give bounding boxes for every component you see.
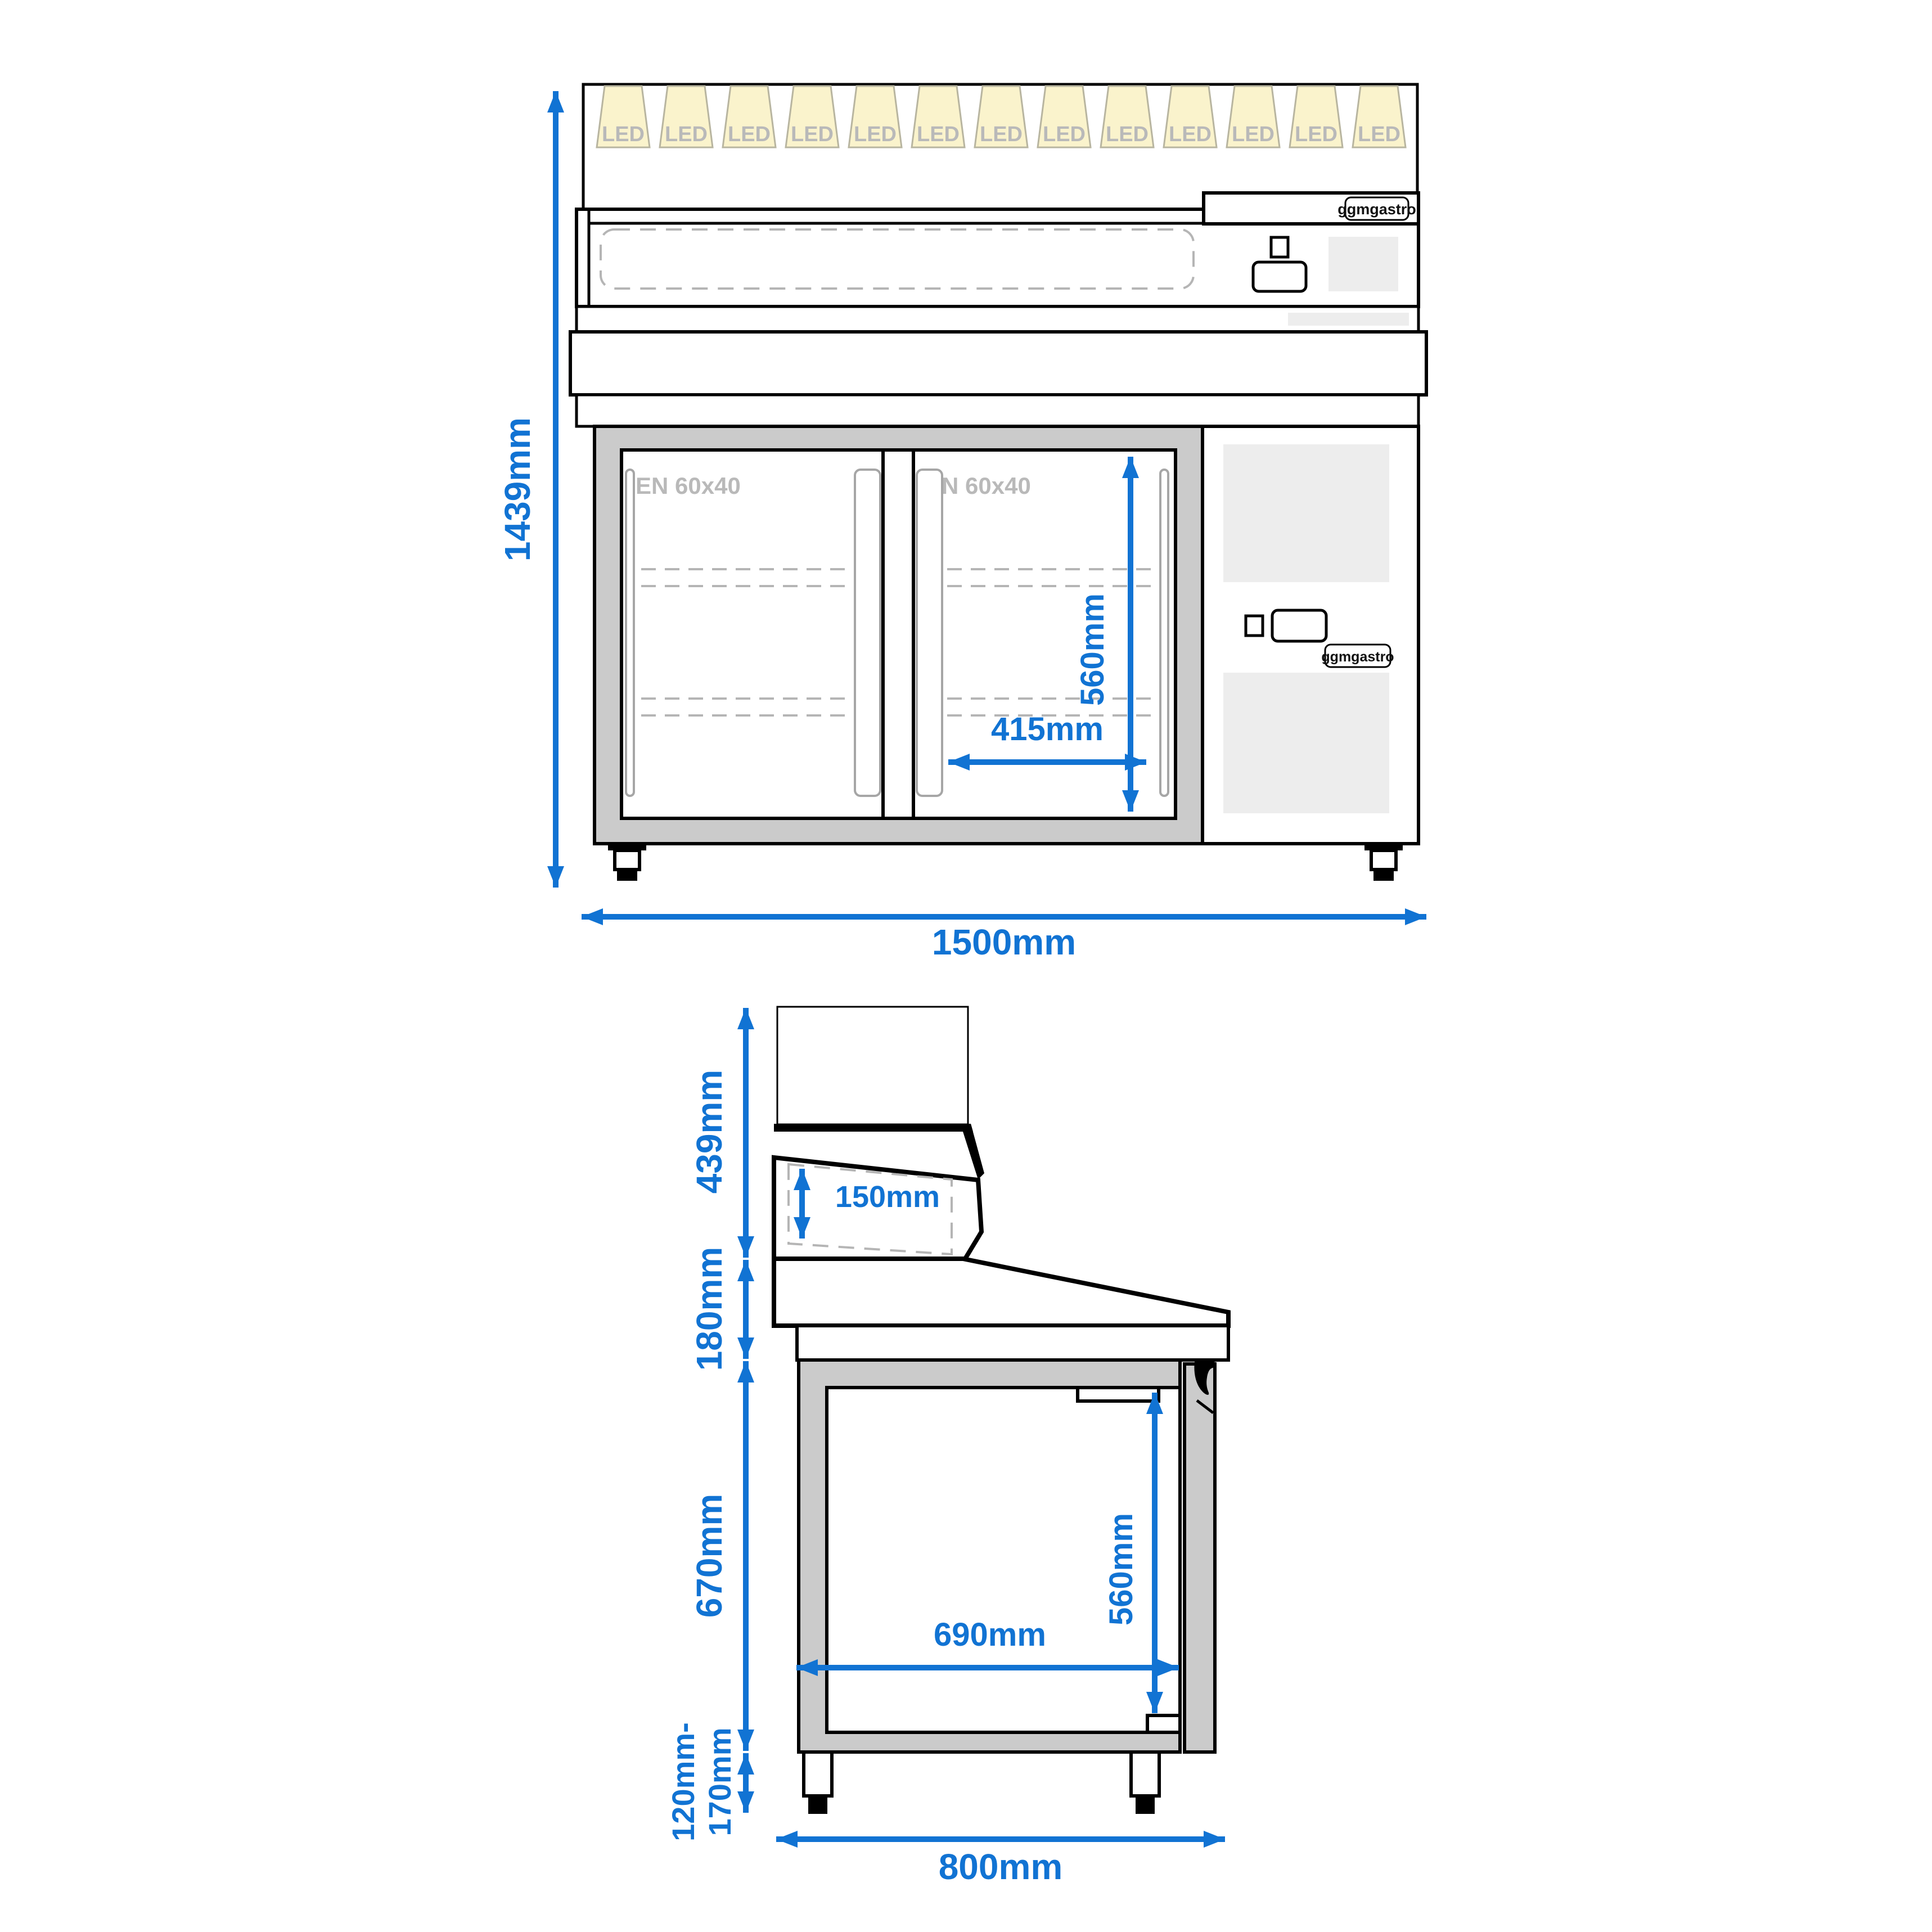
svg-text:560mm: 560mm (1074, 593, 1111, 706)
display-side-profile: 150mm (774, 1158, 981, 1259)
svg-text:LED: LED (665, 123, 708, 146)
side-view: 150mm 560mm (665, 1007, 1228, 1887)
foot-side-left (804, 1752, 832, 1814)
refrigerated-cabinet: EN 60x40 EN 60x40 (595, 426, 1203, 844)
svg-text:800mm: 800mm (939, 1847, 1063, 1887)
svg-text:LED: LED (1043, 123, 1086, 146)
svg-text:439mm: 439mm (689, 1070, 729, 1194)
brand-badge: ggmgastro (1337, 197, 1416, 220)
led-beam-icon: LED (1164, 86, 1217, 147)
rear-panel (777, 1007, 968, 1124)
floor-step (1147, 1715, 1180, 1732)
led-canopy: LED LED LED LED LED LED (583, 84, 1417, 209)
vent-grille (1223, 444, 1389, 582)
dim-total-depth: 800mm (776, 1839, 1225, 1887)
svg-text:150mm: 150mm (835, 1180, 940, 1214)
led-beam-icon: LED (1227, 86, 1280, 147)
svg-text:1500mm: 1500mm (932, 922, 1076, 962)
svg-text:170mm: 170mm (702, 1727, 737, 1836)
svg-text:180mm: 180mm (689, 1247, 729, 1371)
led-beam-icon: LED (975, 86, 1028, 147)
svg-text:LED: LED (980, 123, 1023, 146)
brand-badge: ggmgastro (1321, 645, 1394, 667)
foot-right (1364, 844, 1403, 881)
led-beam-icon: LED (1038, 86, 1091, 147)
svg-text:560mm: 560mm (1103, 1513, 1140, 1625)
front-view: 1439mm LED LED LED LED LED (497, 84, 1426, 962)
svg-text:LED: LED (1169, 123, 1212, 146)
foot-side-right (1131, 1752, 1159, 1814)
tray-standard-label: EN 60x40 (636, 472, 741, 499)
led-beam-icon: LED (1290, 86, 1343, 147)
door-handle (855, 470, 880, 796)
vent-grille (1223, 673, 1389, 813)
svg-text:LED: LED (728, 123, 771, 146)
door-stile (626, 470, 634, 796)
led-beam-icon: LED (786, 86, 839, 147)
worktop-side-profile (774, 1259, 1228, 1360)
led-beam-icon: LED (1353, 86, 1406, 147)
technical-drawing-canvas: 1439mm LED LED LED LED LED (0, 0, 1932, 1932)
svg-text:LED: LED (1106, 123, 1149, 146)
led-beam-icon: LED (660, 86, 713, 147)
svg-text:670mm: 670mm (689, 1494, 729, 1618)
svg-text:LED: LED (1358, 123, 1400, 146)
led-beam-icon: LED (597, 86, 650, 147)
dim-feet-height: 120mm- 170mm (665, 1722, 746, 1841)
dim-worktop-height: 180mm (689, 1247, 746, 1371)
worktop-recess (1288, 313, 1409, 326)
evaporator-step (1078, 1388, 1159, 1401)
machine-compartment: ggmgastro (1203, 426, 1418, 844)
svg-text:120mm-: 120mm- (665, 1722, 701, 1841)
svg-text:ggmgastro: ggmgastro (1337, 201, 1416, 218)
worktop-assembly (570, 307, 1426, 426)
dim-total-width: 1500mm (582, 917, 1426, 962)
svg-text:LED: LED (1295, 123, 1337, 146)
door-stile (1160, 470, 1168, 796)
svg-text:LED: LED (1232, 123, 1275, 146)
svg-text:LED: LED (791, 123, 834, 146)
led-beam-icon: LED (723, 86, 776, 147)
svg-text:LED: LED (854, 123, 897, 146)
led-beam-icon: LED (849, 86, 902, 147)
svg-text:690mm: 690mm (934, 1616, 1046, 1653)
dim-cabinet-height: 670mm (689, 1361, 746, 1751)
dim-total-height-label: 1439mm (497, 417, 538, 561)
vent-panel (1328, 237, 1398, 291)
door-mullion (883, 450, 913, 818)
door-side-slab (1185, 1361, 1216, 1752)
led-beam-icon: LED (912, 86, 965, 147)
cabinet-side-section: 560mm 690mm (796, 1360, 1216, 1752)
door-handle (917, 470, 942, 796)
foot-left (608, 844, 646, 881)
led-beam-icon: LED (1101, 86, 1154, 147)
dim-top-section-height: 439mm (689, 1008, 746, 1258)
svg-text:LED: LED (917, 123, 960, 146)
dim-total-height: 1439mm (497, 91, 556, 888)
svg-text:LED: LED (602, 123, 645, 146)
svg-text:ggmgastro: ggmgastro (1321, 649, 1394, 665)
svg-text:415mm: 415mm (991, 711, 1104, 747)
